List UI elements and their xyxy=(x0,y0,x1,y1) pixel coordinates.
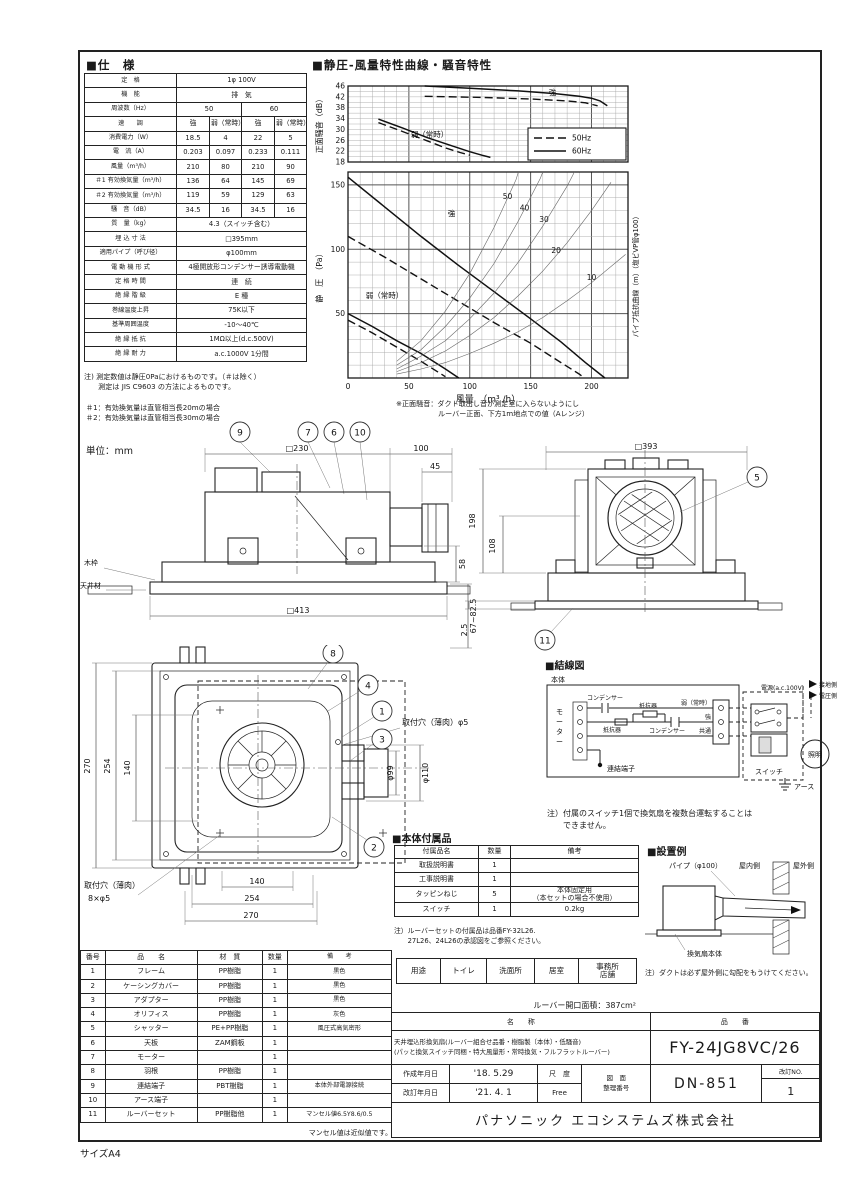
revision-no: 改訂NO. 1 xyxy=(762,1065,819,1103)
table-row: 1フレームPP樹脂1黒色 xyxy=(81,965,392,979)
svg-text:140: 140 xyxy=(249,877,264,886)
svg-text:38: 38 xyxy=(335,103,345,112)
table-row: 周波数（Hz）5060 xyxy=(85,102,307,116)
created-date-value: '18. 5.29 xyxy=(450,1065,538,1084)
front-view-drawing: □393 198 108 2.5 5 11 xyxy=(455,420,820,665)
svg-text:40: 40 xyxy=(520,204,530,213)
power-label: 電源(a.c.100V) xyxy=(761,684,804,692)
callout-8: 8 xyxy=(323,645,343,663)
callout-7: 7 xyxy=(298,422,318,442)
table-row: 埋 込 寸 法□395mm xyxy=(85,232,307,246)
svg-text:150: 150 xyxy=(523,382,538,391)
table-row: 番号品 名材 質数量備 考 xyxy=(81,951,392,965)
svg-text:18: 18 xyxy=(335,158,345,167)
wiring-title: ■結線図 xyxy=(545,657,584,672)
resistor-label-2: 抵抗器 xyxy=(603,726,621,734)
wood-frame-label: 木枠 xyxy=(84,558,98,567)
svg-text:100: 100 xyxy=(331,245,346,254)
pipe-resistance-label: パイプ抵抗曲線（m）（塩ビVP管φ100） xyxy=(631,213,640,338)
ground-side-label: 接地側 xyxy=(819,681,837,689)
svg-text:100: 100 xyxy=(463,382,478,391)
table-row: 10アース端子1 xyxy=(81,1093,392,1107)
svg-text:46: 46 xyxy=(335,82,345,91)
lamp-label: 照明 xyxy=(808,751,822,759)
outdoor-label: 屋外側 xyxy=(793,861,814,870)
usage-table: 用途トイレ洗面所居室事務所店舗 xyxy=(396,958,637,984)
svg-text:200: 200 xyxy=(584,382,599,391)
table-row: 電 流（A）0.2030.0970.2330.111 xyxy=(85,145,307,159)
svg-text:8×φ5: 8×φ5 xyxy=(88,894,110,903)
svg-text:弱（常時）: 弱（常時） xyxy=(366,291,404,300)
table-row: 取扱説明書1 xyxy=(395,859,639,873)
svg-text:50Hz: 50Hz xyxy=(572,134,591,143)
svg-text:3: 3 xyxy=(379,736,385,746)
table-row: 消費電力（W）18.54225 xyxy=(85,131,307,145)
earth-label: アース xyxy=(794,783,814,791)
table-row: 2ケーシングカバーPP樹脂1黒色 xyxy=(81,979,392,993)
title-block: 名 称 品 番 天井埋込形換気扇(ルーバー組合せ品番・樹脂製〔本体〕・低騒音) … xyxy=(391,1012,820,1138)
table-row: 質 量（kg）4.3（スイッチ含む） xyxy=(85,217,307,231)
table-row: 付属品名数量備考 xyxy=(395,846,639,859)
pipe-label: パイプ（φ100） xyxy=(669,862,722,870)
table-row: 機 能排 気 xyxy=(85,88,307,102)
ref-number-value: DN-851 xyxy=(651,1065,762,1103)
company-name: パナソニック エコシステムズ株式会社 xyxy=(392,1103,819,1136)
svg-text:9: 9 xyxy=(237,429,243,439)
svg-text:34: 34 xyxy=(335,114,345,123)
pressure-flow-noise-chart: 正面騒音（dB） 静 圧 （Pa） 風量 （m³ /h） パイプ抵抗曲線（m）（… xyxy=(312,72,644,410)
wiring-note: 注）付属のスイッチ1個で換気扇を複数台運転することは できません。 xyxy=(547,808,752,832)
callout-10: 10 xyxy=(350,422,370,442)
svg-text:0: 0 xyxy=(346,382,351,391)
svg-text:11: 11 xyxy=(539,637,550,647)
body-label: 本体 xyxy=(551,675,565,684)
capacitor-label-2: コンデンサー xyxy=(649,727,685,735)
mounting-hole-marks xyxy=(216,706,387,837)
indoor-label: 屋内側 xyxy=(739,861,760,870)
svg-text:26: 26 xyxy=(335,136,345,145)
svg-text:□393: □393 xyxy=(635,442,658,451)
part-number-value: FY-24JG8VC/26 xyxy=(651,1031,819,1065)
table-row: 定 格1φ 100V xyxy=(85,74,307,88)
table-row: 用途トイレ洗面所居室事務所店舗 xyxy=(397,959,637,984)
table-row: 騒 音（dB）34.51634.516 xyxy=(85,203,307,217)
fan-body-label: 換気扇本体 xyxy=(687,949,722,958)
wiring-diagram: 本体 モ ー タ ー コンデンサー 抵抗器 抵抗器 コンデンサー 弱（常時） 強… xyxy=(545,672,837,807)
name-header: 名 称 xyxy=(392,1013,651,1031)
noise-y-axis-label: 正面騒音（dB） xyxy=(314,95,324,154)
table-row: 工事説明書1 xyxy=(395,873,639,887)
svg-text:100: 100 xyxy=(413,444,428,453)
capacitor-label-1: コンデンサー xyxy=(587,694,623,702)
svg-text:6: 6 xyxy=(331,429,337,439)
table-row: 11ルーバーセットPP樹脂他1マンセル値6.5Y8.6/0.5 xyxy=(81,1108,392,1122)
resistor-label-1: 抵抗器 xyxy=(639,702,657,710)
svg-text:22: 22 xyxy=(335,147,345,156)
spec-title: ■仕 様 xyxy=(86,57,135,73)
svg-text:7: 7 xyxy=(305,429,311,439)
table-row: 絶 縁 抵 抗1MΩ以上(d.c.500V) xyxy=(85,333,307,347)
table-row: 8羽根PP樹脂1 xyxy=(81,1065,392,1079)
thin-wall-hole-label-bottom: 取付穴（薄肉） xyxy=(84,880,140,890)
svg-text:5: 5 xyxy=(754,474,760,484)
svg-text:2.5: 2.5 xyxy=(460,624,469,637)
svg-text:4: 4 xyxy=(365,682,371,692)
parts-note: マンセル値は近似値です。 xyxy=(80,1128,392,1138)
svg-text:タ: タ xyxy=(556,727,563,736)
ref-number-label: 図 面整理番号 xyxy=(582,1065,651,1103)
svg-text:強: 強 xyxy=(549,87,557,97)
svg-text:ー: ー xyxy=(556,718,563,726)
thin-wall-hole-label-right: 取付穴（薄肉）φ5 xyxy=(402,717,468,727)
callout-1: 1 xyxy=(372,701,392,721)
table-row: 3アダプターPP樹脂1黒色 xyxy=(81,993,392,1007)
created-date-label: 作成年月日 xyxy=(392,1065,450,1084)
table-row: ＃1 有効換気量（m³/h）1366414569 xyxy=(85,174,307,188)
revised-date-value: '21. 4. 1 xyxy=(450,1084,538,1103)
svg-text:□413: □413 xyxy=(287,606,310,615)
svg-text:50: 50 xyxy=(335,309,345,318)
scale-value: Free xyxy=(538,1084,582,1103)
svg-text:150: 150 xyxy=(331,180,346,189)
callout-11: 11 xyxy=(535,630,555,650)
svg-text:10: 10 xyxy=(587,273,597,282)
svg-text:30: 30 xyxy=(335,125,345,134)
wall-hatch xyxy=(773,862,789,954)
svg-text:45: 45 xyxy=(430,462,440,471)
table-row: 絶 縁 階 級E 種 xyxy=(85,289,307,303)
table-row: 巻線温度上昇75K以下 xyxy=(85,304,307,318)
table-row: 速 調強弱（常時）強弱（常時） xyxy=(85,117,307,131)
weak-label: 弱（常時） xyxy=(681,699,711,707)
table-row: 風量（m³/h）2108021090 xyxy=(85,160,307,174)
table-row: 7モーター1 xyxy=(81,1051,392,1065)
sheet-size-label: サイズA4 xyxy=(80,1146,121,1160)
svg-text:50: 50 xyxy=(503,192,513,201)
svg-text:弱（常時）: 弱（常時） xyxy=(411,130,449,139)
strong-label: 強 xyxy=(705,713,711,721)
callout-4: 4 xyxy=(358,675,378,695)
svg-text:10: 10 xyxy=(354,429,366,439)
svg-text:□230: □230 xyxy=(286,444,309,453)
svg-text:ー: ー xyxy=(556,738,563,746)
table-row: 6天板ZAM鋼板1 xyxy=(81,1036,392,1050)
svg-text:198: 198 xyxy=(468,513,477,528)
callout-9: 9 xyxy=(230,422,250,442)
svg-text:1: 1 xyxy=(379,708,385,718)
callout-3: 3 xyxy=(372,729,392,749)
svg-text:50: 50 xyxy=(404,382,414,391)
install-drawing: パイプ（φ100） 屋内側 屋外側 換気扇本体 xyxy=(645,856,823,964)
svg-text:108: 108 xyxy=(488,538,497,553)
accessories-title: ■本体付属品 xyxy=(392,830,451,845)
svg-text:140: 140 xyxy=(123,760,132,775)
svg-text:φ110: φ110 xyxy=(421,763,430,784)
svg-text:254: 254 xyxy=(244,894,259,903)
svg-text:60Hz: 60Hz xyxy=(572,147,591,156)
table-row: 適用パイプ（呼び径）φ100mm xyxy=(85,246,307,260)
table-row: 基準周囲温度-10～40℃ xyxy=(85,318,307,332)
svg-text:254: 254 xyxy=(103,758,112,773)
svg-text:2: 2 xyxy=(371,844,377,854)
svg-text:20: 20 xyxy=(551,246,561,255)
drawing-sheet: ■仕 様 定 格1φ 100V機 能排 気周波数（Hz）5060速 調強弱（常時… xyxy=(0,0,848,1200)
chart-note: ※正面騒音：ダクト取出し音が測定室に入らないようにしルーバー正面、下方1m地点で… xyxy=(396,399,589,418)
table-row: タッピンねじ5本体固定用（本セットの場合不使用） xyxy=(395,887,639,903)
svg-text:モ: モ xyxy=(556,708,563,716)
table-row: 9連結端子PBT樹脂1本体外部電源接続 xyxy=(81,1079,392,1093)
pressure-y-axis-label: 静 圧 （Pa） xyxy=(314,249,324,302)
accessories-table: 付属品名数量備考取扱説明書1工事説明書1タッピンねじ5本体固定用（本セットの場合… xyxy=(394,845,639,917)
svg-text:42: 42 xyxy=(335,92,345,101)
part-number-header: 品 番 xyxy=(651,1013,819,1031)
scale-label: 尺 度 xyxy=(538,1065,582,1084)
voltage-side-label: 電圧側 xyxy=(819,692,837,700)
table-row: スイッチ10.2kg xyxy=(395,903,639,917)
chart-title: ■静圧-風量特性曲線・騒音特性 xyxy=(312,57,492,73)
svg-text:270: 270 xyxy=(83,758,92,773)
accessories-note: 注）ルーバーセットの付属品は品番FY-32L26. 27L26、24L26の承認… xyxy=(394,927,545,947)
svg-text:強: 強 xyxy=(448,208,456,218)
spec-notes: 注) 測定数値は静圧0Paにおけるものです。（＃は除く） 測定は JIS C96… xyxy=(84,372,261,391)
link-terminal-label: 連結端子 xyxy=(607,764,635,773)
svg-text:30: 30 xyxy=(539,215,549,224)
install-note: 注）ダクトは必ず屋外側に勾配をもうけてください。 xyxy=(645,968,821,978)
common-label: 共通 xyxy=(699,727,711,735)
switch-label: スイッチ xyxy=(755,768,783,776)
callout-5: 5 xyxy=(747,467,767,487)
svg-text:8: 8 xyxy=(330,650,336,660)
svg-text:270: 270 xyxy=(243,911,258,920)
louver-area-label: ルーバー開口面積：387cm² xyxy=(396,1000,636,1011)
ceiling-label: 天井材 xyxy=(80,581,101,590)
callout-6: 6 xyxy=(324,422,344,442)
parts-table: 番号品 名材 質数量備 考1フレームPP樹脂1黒色2ケーシングカバーPP樹脂1黒… xyxy=(80,950,392,1123)
product-name: 天井埋込形換気扇(ルーバー組合せ品番・樹脂製〔本体〕・低騒音) (パッと換気スイ… xyxy=(392,1031,651,1065)
table-row: ＃2 有効換気量（m³/h）1195912963 xyxy=(85,189,307,203)
side-view-drawing: 9 7 6 10 □230 100 45 木枠 天井材 58 □413 xyxy=(80,420,480,655)
table-row: 絶 縁 耐 力a.c.1000V 1分間 xyxy=(85,347,307,361)
table-row: 定 格 時 間連 続 xyxy=(85,275,307,289)
spec-table: 定 格1φ 100V機 能排 気周波数（Hz）5060速 調強弱（常時）強弱（常… xyxy=(84,73,307,362)
table-row: 5シャッターPE+PP樹脂1風圧式高気密形 xyxy=(81,1022,392,1036)
table-row: 4オリフィスPP樹脂1灰色 xyxy=(81,1008,392,1022)
table-row: 電 動 機 形 式4極開放形コンデンサー誘導電動機 xyxy=(85,261,307,275)
revised-date-label: 改訂年月日 xyxy=(392,1084,450,1103)
impeller-blades xyxy=(228,731,296,799)
svg-text:φ99: φ99 xyxy=(386,765,395,780)
